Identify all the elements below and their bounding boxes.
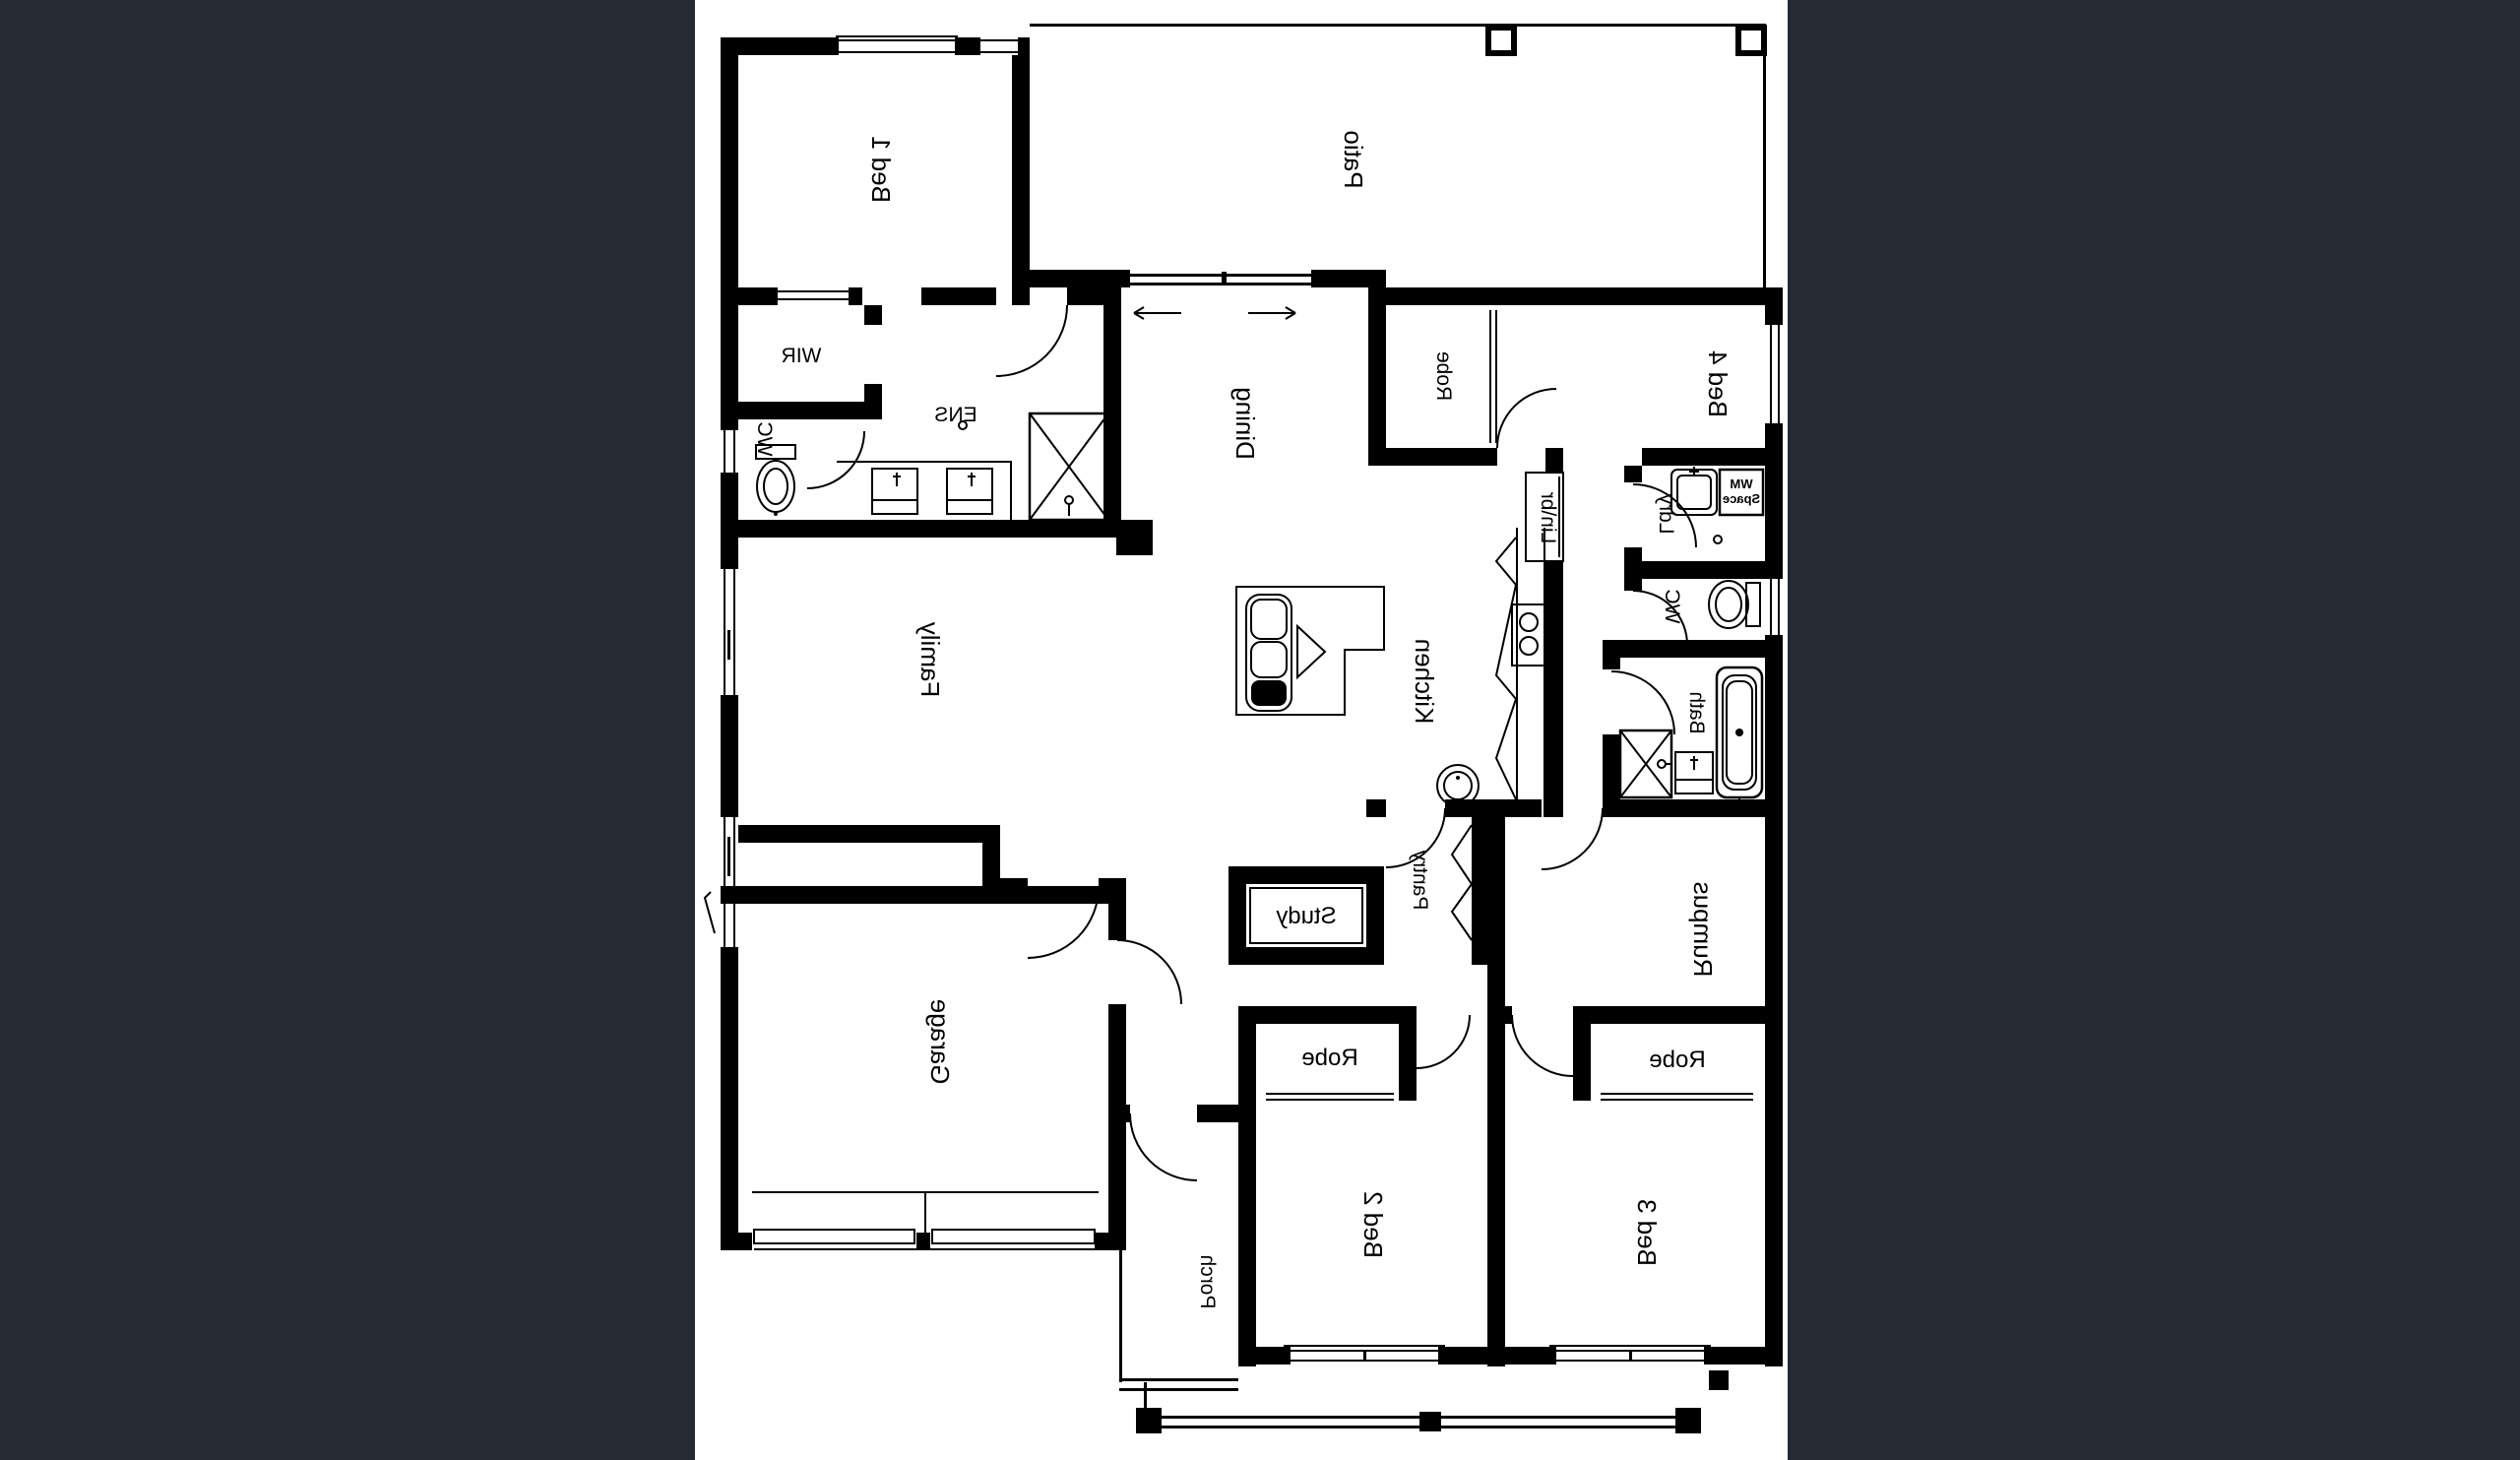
label-rumpus: Rumpus (1688, 882, 1718, 978)
ens-door-arc (996, 305, 1067, 376)
deck-rail-connector (1144, 1382, 1147, 1418)
label-bed4: Bed 4 (1703, 350, 1732, 417)
window-family (724, 569, 735, 695)
floor-waste-dot (1714, 536, 1722, 543)
kitchen-round-sink-icon (1437, 765, 1479, 806)
label-robe-bed3: Robe (1649, 1047, 1705, 1073)
window-entry-nook (724, 817, 735, 947)
bed4-door-arc (1497, 389, 1556, 448)
patio-edge-top (1030, 24, 1766, 27)
window-wc-main (1770, 576, 1780, 635)
vanity-ens-icon (837, 461, 1012, 520)
porch-step-line (1119, 1378, 1238, 1381)
shower-ens-icon (1030, 413, 1108, 520)
robe-bed2-slider (1266, 1093, 1394, 1101)
label-wc-main: WC (1661, 590, 1683, 624)
window-bed4 (1770, 325, 1780, 423)
stacker-door (1130, 270, 1311, 287)
deck-rail-outer (1143, 1416, 1694, 1419)
pantry-zigzag (1452, 825, 1472, 940)
label-wir: WIR (782, 345, 822, 367)
deck-post (1419, 1412, 1441, 1431)
vanity-bath-icon (1675, 752, 1713, 793)
patio-edge-side (1763, 24, 1766, 287)
label-patio: Patio (1339, 130, 1368, 188)
bench-zigzag (1496, 538, 1516, 799)
shower-bath-icon (1620, 730, 1671, 797)
dishwasher-arrow (1297, 626, 1325, 677)
bed2-door-arc (1417, 1015, 1470, 1068)
label-dining: Dining (1230, 387, 1260, 460)
patio-structure (1030, 24, 1766, 287)
label-bed1: Bed 1 (866, 136, 896, 203)
bathtub-icon (1717, 667, 1762, 809)
robe-bed3-slider (1601, 1093, 1753, 1101)
window-wc-ens (724, 430, 735, 473)
page-background: Bed 1 Patio WIR ENS WC Robe Bed 4 Dining… (0, 0, 2520, 1460)
island-sink-icon (1246, 595, 1291, 711)
label-kitchen: Kitchen (1410, 639, 1439, 725)
window-bed1-wide (836, 35, 958, 53)
window-bed2 (1284, 1345, 1445, 1362)
floor-plan-sheet: Bed 1 Patio WIR ENS WC Robe Bed 4 Dining… (695, 0, 1788, 1460)
patio-mid-post (1488, 28, 1514, 53)
room-labels: Bed 1 Patio WIR ENS WC Robe Bed 4 Dining… (753, 130, 1760, 1308)
label-robe-bed4: Robe (1432, 351, 1455, 401)
window-bed3 (1549, 1345, 1711, 1362)
label-wm-line1: WM (1730, 476, 1752, 491)
wir-slider-door (778, 290, 852, 300)
robe-bed4-slider (1489, 310, 1497, 443)
label-pantry: Pantry (1409, 850, 1431, 910)
stray-mark (705, 892, 715, 933)
garage-internal-door-arc (1117, 940, 1181, 1004)
kitchen-bench (1437, 528, 1545, 817)
deck-post (1675, 1408, 1701, 1433)
porch-door-arc (1130, 1113, 1197, 1180)
label-linen: Lin\br (1537, 492, 1559, 544)
label-wm-line2: Space (1723, 491, 1760, 506)
porch-edge-line (1119, 1122, 1122, 1382)
deck-corner-post (1709, 1370, 1729, 1390)
deck-post (1136, 1408, 1162, 1433)
label-bed2: Bed 2 (1358, 1191, 1388, 1258)
patio-corner-post (1738, 28, 1764, 53)
label-family: Family (915, 622, 945, 698)
label-porch: Porch (1196, 1255, 1219, 1309)
label-ens: ENS (934, 404, 976, 426)
floor-plan-drawing: Bed 1 Patio WIR ENS WC Robe Bed 4 Dining… (695, 0, 1788, 1460)
label-bed3: Bed 3 (1632, 1199, 1662, 1266)
island-bench (1236, 587, 1384, 715)
label-garage: Garage (925, 999, 955, 1085)
label-wc-ens: WC (753, 422, 776, 457)
window-bed1-small (977, 39, 1021, 53)
label-bath: Bath (1685, 691, 1708, 733)
rumpus-door-arc (1542, 808, 1603, 869)
label-study: Study (1276, 903, 1336, 929)
label-laundry: Ldry (1655, 493, 1677, 534)
stacker-arrows (1134, 307, 1295, 319)
bed3-door-arc (1512, 1015, 1573, 1076)
walls (721, 37, 1783, 1366)
deck-structure (705, 892, 1729, 1433)
label-robe-bed2: Robe (1301, 1045, 1357, 1071)
wc-ens-door-arc (807, 431, 864, 488)
bath-door-arc (1611, 671, 1674, 734)
toilet-main-icon (1709, 581, 1760, 628)
porch-step-line-2 (1119, 1388, 1238, 1391)
deck-rail-inner (1143, 1426, 1694, 1428)
